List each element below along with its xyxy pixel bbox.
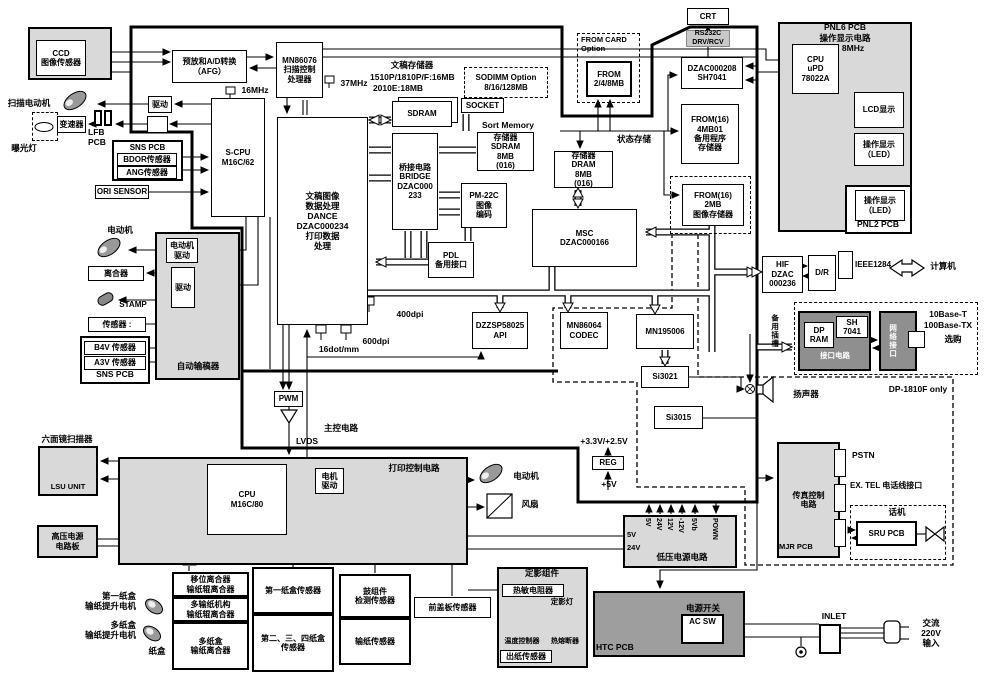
extel-connector xyxy=(834,484,846,512)
freq-8mhz-label: 8MHz xyxy=(838,44,868,54)
block-ccd: CCD 图像传感器 xyxy=(36,40,86,76)
docmem-line1: 1510P/1810P/F:16MB xyxy=(370,73,454,83)
block-exit-sensor: 出纸传感器 xyxy=(500,650,552,663)
lv-pin-5vb: 5Vb xyxy=(690,518,697,531)
block-a3v-sensor: A3V 传感器 xyxy=(84,356,146,370)
block-dp-ram: DP RAM xyxy=(804,322,834,348)
pnl2-pcb-label: PNL2 PCB xyxy=(847,220,909,230)
lv-power-label: 低压电源电路 xyxy=(644,553,720,563)
block-shift-clutch: 移位离合器 输纸辊离合器 xyxy=(172,572,249,597)
stamp-label: STAMP xyxy=(113,300,153,309)
lv-pin-neg12v: -12V xyxy=(677,518,684,533)
inlet-label: INLET xyxy=(816,612,852,622)
interface-circuit-label: 接口电路 xyxy=(810,352,860,361)
inlet-connector xyxy=(819,624,841,654)
mjr-pcb-label: MJR PCB xyxy=(779,543,825,552)
scan-motor-label: 扫描电动机 xyxy=(2,99,56,109)
block-crt: CRT xyxy=(687,8,729,25)
block-from16-2mb: FROM(16) 2MB 图像存储器 xyxy=(682,184,744,226)
block-gearbox: 变速器 xyxy=(57,116,86,133)
pstn-connector xyxy=(834,449,846,477)
htc-pcb-label: HTC PCB xyxy=(596,643,646,653)
block-dram: 存储器 DRAM 8MB (016) xyxy=(554,151,613,188)
block-from-card: FROM 2/4/8MB xyxy=(586,61,632,97)
speaker-label: 扬声器 xyxy=(789,390,823,400)
status-memory-label: 状态存储 xyxy=(611,135,657,145)
sodimm-option-box: SODIMM Option 8/16/128MB xyxy=(464,67,548,98)
block-sensors: 传感器 : xyxy=(88,317,146,332)
spare-slot-label: 备用插槽 xyxy=(770,305,779,357)
sns-pcb2-label2: SNS PCB xyxy=(93,370,137,380)
thermal-fuse-label: 热熔断器 xyxy=(544,638,586,646)
fan-label: 风扇 xyxy=(516,500,544,510)
tenbase-tx-label: 100Base-TX xyxy=(918,321,978,331)
print-ctrl-label: 打印控制电路 xyxy=(378,464,450,474)
sort-memory-label: Sort Memory xyxy=(482,121,534,131)
ac-input-label: 交流 220V 输入 xyxy=(914,619,948,648)
block-multi-cassette-clutch: 多纸盒 输纸离合器 xyxy=(172,622,249,670)
freq-16mhz-label: 16MHz xyxy=(240,86,270,96)
block-bdor-sensor: BDOR传感器 xyxy=(117,153,177,166)
block-print-cpu: CPU M16C/80 xyxy=(207,464,287,535)
lamp-dashed-box xyxy=(32,112,58,141)
hex-scanner-label: 六面镜扫描器 xyxy=(35,435,99,445)
block-feed-sensor: 输纸传感器 xyxy=(339,618,411,665)
docmem-title: 文稿存储器 xyxy=(383,61,441,71)
block-diagram: 高压电源 电路板 传真控制 电路 FROM CARD Option SODIMM… xyxy=(0,0,1000,681)
block-si3015: Si3015 xyxy=(654,406,703,429)
block-adf-motor-drive: 电动机 驱动 xyxy=(166,238,198,263)
block-mn195006: MN195006 xyxy=(636,314,694,349)
freq-37mhz-label: 37MHz xyxy=(339,79,369,89)
block-s-cpu: S-CPU M16C/62 xyxy=(211,98,265,217)
v5-label: +5V xyxy=(594,480,624,490)
network-interface-label: 网络接口 xyxy=(888,316,897,366)
multi-motor-label: 多纸盒 输纸提升电机 xyxy=(70,621,136,641)
block-codec: MN86064 CODEC xyxy=(560,312,608,349)
block-cassette234-sensor: 第二、三、四纸盒 传感器 xyxy=(252,614,334,672)
fuser-lamp-label: 定影灯 xyxy=(543,598,581,607)
main-ctrl-label: 主控电路 xyxy=(316,424,366,434)
block-ac-sw: AC SW xyxy=(681,614,724,644)
v33-label: +3.3V/+2.5V xyxy=(572,437,636,447)
block-pm22c: PM-22C 图像 编码 xyxy=(461,183,507,228)
pstn-label: PSTN xyxy=(852,451,886,461)
block-sort-sdram: 存储器 SDRAM 8MB (016) xyxy=(477,132,534,171)
ieee1284-label: IEEE1284 xyxy=(853,260,893,269)
block-cassette1-sensor: 第一纸盒传感器 xyxy=(252,567,334,614)
exposure-lamp-label: 曝光灯 xyxy=(5,144,43,154)
block-from16-4mb: FROM(16) 4MB01 备用程序 存储器 xyxy=(681,104,739,164)
block-panel-cpu: CPU uPD 78022A xyxy=(792,44,839,94)
block-dr: D/R xyxy=(808,255,836,291)
block-afg: 预放和A/D转换 （AFG） xyxy=(172,50,247,83)
sru-connector xyxy=(834,519,846,547)
block-socket: SOCKET xyxy=(461,98,504,113)
dpi600-label: 600dpi xyxy=(359,337,393,347)
block-multi-feed-clutch: 多输纸机构 输纸辊离合器 xyxy=(172,597,249,622)
pnl6-pcb-label: PNL6 PCB xyxy=(808,23,882,33)
adf-label: 自动输稿器 xyxy=(166,362,230,372)
lv-pin-24v: 24V xyxy=(655,518,662,530)
docmem-line2: 2010E:18MB xyxy=(370,84,426,94)
extel-label: EX. TEL 电话线接口 xyxy=(850,481,934,490)
block-drive2-buffer xyxy=(147,116,168,133)
tenbase-t-label: 10Base-T xyxy=(922,310,974,320)
hv-power-box: 高压电源 电路板 xyxy=(37,525,98,558)
cassette-label: 纸盒 xyxy=(143,647,171,657)
lfb-connector-1 xyxy=(94,110,102,126)
block-ang-sensor: ANG传感器 xyxy=(117,166,177,179)
lfb-pcb-label: LFB PCB xyxy=(88,128,116,148)
power-switch-label: 电源开关 xyxy=(678,604,728,614)
block-pwm: PWM xyxy=(274,391,303,407)
block-mn86076: MN86076 扫描控制 处理器 xyxy=(276,42,323,98)
lfb-connector-2 xyxy=(104,110,112,126)
dot16-label: 16dot/mm xyxy=(316,345,362,355)
block-clutch: 离合器 xyxy=(88,266,144,281)
block-drum-sensor: 鼓组件 检测传感器 xyxy=(339,574,411,618)
lv-left-24v: 24V xyxy=(627,544,649,553)
block-lcd: LCD显示 xyxy=(854,92,904,128)
block-thermistor: 热敏电阻器 xyxy=(502,584,564,597)
block-led1: 操作显示 （LED） xyxy=(854,133,904,166)
lv-left-5v: 5V xyxy=(627,531,647,540)
block-pdl: PDL 备用接口 xyxy=(428,242,474,278)
fax-control-box: 传真控制 电路 xyxy=(777,442,840,558)
block-sh7041: SH 7041 xyxy=(836,316,868,338)
block-cover-sensor: 前盖板传感器 xyxy=(414,597,491,618)
block-motor-drive: 电机 驱动 xyxy=(315,468,344,494)
block-b4v-sensor: B4V 传感器 xyxy=(84,341,146,355)
lsu-unit-label: LSU UNIT xyxy=(40,483,96,492)
handset-label: 话机 xyxy=(882,508,912,518)
lvds-label: LVDS xyxy=(292,437,322,447)
computer-label: 计算机 xyxy=(925,262,961,272)
block-ori-sensor: ORI SENSOR xyxy=(95,185,149,199)
dpi400-label: 400dpi xyxy=(393,310,427,320)
network-connector xyxy=(908,331,925,348)
dp1810f-only-label: DP-1810F only xyxy=(878,385,958,395)
block-msc: MSC DZAC000166 xyxy=(532,209,637,267)
lv-pin-pown: POWN xyxy=(711,518,718,540)
adf-motor-label: 电动机 xyxy=(100,226,140,236)
block-bridge: 桥接电路 BRIDGE DZAC000 233 xyxy=(392,133,438,230)
block-sru-pcb: SRU PCB xyxy=(856,521,917,546)
ieee1284-arrow xyxy=(890,260,924,276)
block-dance: 文稿图像 数据处理 DANCE DZAC000234 打印数据 处理 xyxy=(277,117,368,325)
block-drive1: 驱动 xyxy=(148,96,172,113)
lv-pin-5v: 5V xyxy=(644,518,651,527)
block-reg: REG xyxy=(592,456,624,470)
lv-pin-12v: 12V xyxy=(666,518,673,530)
block-adf-drive: 驱动 xyxy=(171,267,195,308)
block-rs232c: RS232C DRV/RCV xyxy=(686,30,730,47)
optional-label: 选购 xyxy=(938,335,968,345)
block-si3021: Si3021 xyxy=(641,366,689,388)
block-sdram: SDRAM xyxy=(392,101,452,127)
block-hif: HIF DZAC 000236 xyxy=(762,256,803,293)
ieee1284-connector xyxy=(838,251,853,279)
print-motor-label: 电动机 xyxy=(509,472,543,482)
fuser-unit-label: 定影组件 xyxy=(511,569,573,579)
block-dzac000208: DZAC000208 SH7041 xyxy=(681,57,743,89)
paper1-motor-label: 第一纸盒 输纸提升电机 xyxy=(70,592,136,612)
block-led2: 操作显示 （LED） xyxy=(855,190,905,221)
temp-ctrl-label: 温度控制器 xyxy=(498,638,546,646)
block-api: DZZSP58025 API xyxy=(472,312,528,349)
